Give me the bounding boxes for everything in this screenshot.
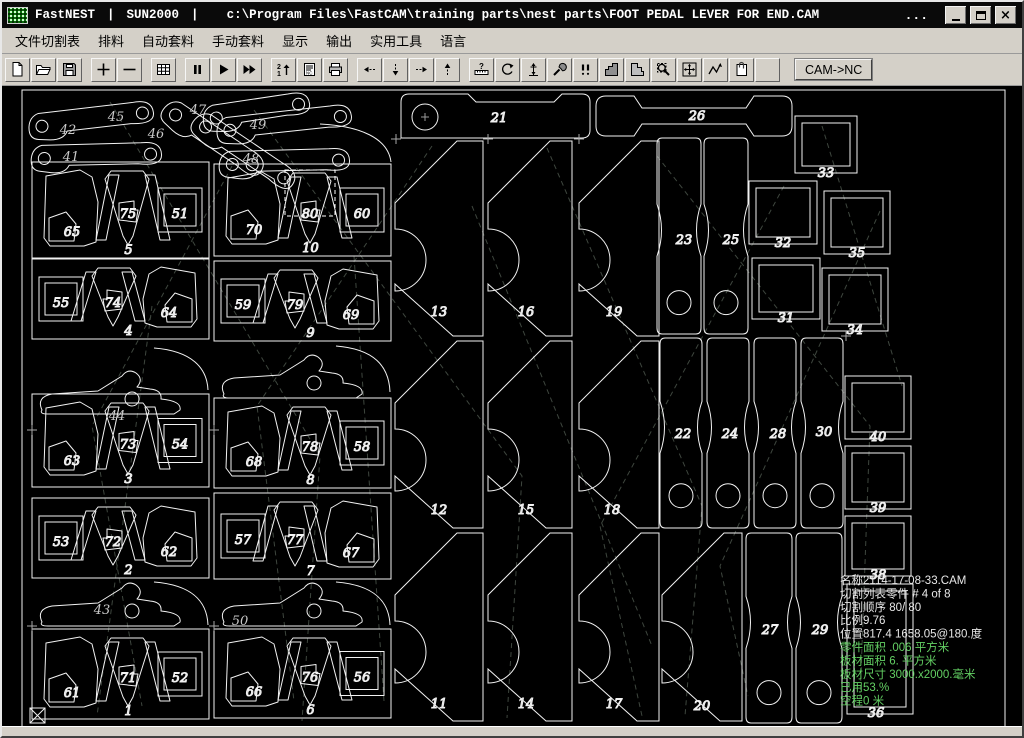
strip-part-30[interactable]: 30 bbox=[801, 338, 843, 528]
flank-triangle[interactable] bbox=[278, 177, 301, 238]
part-inner-cut bbox=[802, 123, 850, 166]
part-label: 73 bbox=[120, 438, 137, 453]
toolbar: 21NC?CAM->NC bbox=[2, 54, 1022, 86]
info-line: 板材尺寸 3000.x2000.毫米 bbox=[840, 667, 976, 681]
strip-hole bbox=[810, 484, 834, 508]
rotate-icon[interactable] bbox=[495, 58, 520, 82]
move-right-icon[interactable] bbox=[409, 58, 434, 82]
strip-hole bbox=[667, 291, 691, 315]
tall-part-14[interactable]: 14 bbox=[488, 533, 572, 721]
part-shape-icon[interactable] bbox=[599, 58, 624, 82]
part-outline bbox=[824, 191, 890, 254]
part-outline bbox=[579, 533, 659, 721]
info-line: 切割顺序 80/ 80 bbox=[840, 600, 921, 614]
menu-item-7[interactable]: 语言 bbox=[431, 28, 475, 53]
part-inner-cut bbox=[759, 265, 813, 312]
strip-part-28[interactable]: 28 bbox=[754, 338, 796, 528]
tall-part-15[interactable]: 15 bbox=[488, 341, 572, 528]
square-part-31[interactable]: 31 bbox=[752, 258, 820, 326]
lever-hole bbox=[307, 604, 321, 618]
restore-button[interactable] bbox=[969, 5, 992, 25]
traverse-path bbox=[472, 206, 652, 646]
lever-hole bbox=[36, 120, 49, 133]
part-label: 67 bbox=[343, 546, 360, 561]
part-label: 22 bbox=[674, 427, 692, 442]
svg-text:2: 2 bbox=[277, 64, 281, 71]
path-icon[interactable] bbox=[703, 58, 728, 82]
part-label: 2 bbox=[123, 563, 132, 578]
nest-module-2[interactable]: 6272532 bbox=[32, 498, 209, 578]
drawing-area[interactable]: 6575515647455463735436272532617152170806… bbox=[2, 86, 1022, 726]
part-label: 60 bbox=[354, 207, 371, 222]
info-line: 已用53.% bbox=[840, 682, 889, 694]
part-label: 44 bbox=[108, 409, 126, 424]
app-title: FastNEST bbox=[35, 8, 95, 22]
part-label: 8 bbox=[306, 473, 314, 488]
part-label: 6 bbox=[306, 703, 314, 718]
menu-item-5[interactable]: 输出 bbox=[317, 28, 361, 53]
lever-part-42[interactable] bbox=[28, 101, 155, 141]
part-outline bbox=[662, 533, 742, 721]
hole-center-mark bbox=[421, 113, 429, 121]
lever-part-x[interactable] bbox=[222, 355, 362, 398]
part-label: 78 bbox=[302, 440, 319, 455]
part-label: 11 bbox=[431, 697, 448, 712]
svg-text:?: ? bbox=[479, 62, 484, 71]
part-label: 75 bbox=[120, 207, 137, 222]
part-outline bbox=[579, 341, 659, 528]
strip-part-24[interactable]: 24 bbox=[707, 338, 749, 528]
measure-icon[interactable]: ? bbox=[469, 58, 494, 82]
strip-hole bbox=[807, 681, 831, 705]
part-label: 65 bbox=[64, 225, 81, 240]
part-outline bbox=[822, 268, 888, 331]
lever-hole bbox=[307, 376, 321, 390]
part-label: 71 bbox=[120, 671, 137, 686]
square-part-35[interactable]: 35 bbox=[824, 191, 890, 261]
cross-mark bbox=[27, 425, 37, 435]
remnant-arc bbox=[154, 582, 208, 625]
nc-code-icon[interactable]: NC bbox=[297, 58, 322, 82]
svg-text:1: 1 bbox=[277, 71, 281, 78]
part-outline bbox=[749, 181, 817, 244]
move-left-icon[interactable] bbox=[357, 58, 382, 82]
part-outline bbox=[752, 258, 820, 319]
tall-part-18[interactable]: 18 bbox=[579, 341, 659, 528]
zoom-out-icon[interactable] bbox=[117, 58, 142, 82]
part-label: 43 bbox=[93, 603, 111, 618]
square-part-40[interactable]: 40 bbox=[845, 376, 911, 445]
part-label: 79 bbox=[287, 298, 304, 313]
menu-item-3[interactable]: 手动套料 bbox=[203, 28, 273, 53]
lever-outline bbox=[222, 355, 362, 398]
part-label: 36 bbox=[868, 706, 885, 721]
part-label: 5 bbox=[124, 243, 132, 258]
info-panel: 名称2114-17-08-33.CAM切割列表零件 # 4 of 8切割顺序 8… bbox=[840, 573, 983, 708]
part-inner-cut bbox=[829, 275, 881, 324]
part-label: 30 bbox=[816, 425, 833, 440]
part-label: 24 bbox=[721, 427, 739, 442]
strip-part-25[interactable]: 25 bbox=[704, 138, 748, 334]
part-label: 25 bbox=[722, 233, 740, 248]
lever-hole bbox=[136, 107, 149, 120]
strip-part-23[interactable]: 23 bbox=[657, 138, 701, 334]
part-outline bbox=[488, 341, 572, 528]
part-label: 41 bbox=[62, 150, 80, 165]
part-inner-cut bbox=[852, 383, 904, 432]
status-bar bbox=[2, 726, 1022, 736]
fast-run-icon[interactable] bbox=[237, 58, 262, 82]
restore-icon bbox=[976, 11, 986, 20]
nest-module-4[interactable]: 6474554 bbox=[32, 259, 209, 339]
flank-triangle[interactable] bbox=[304, 506, 327, 561]
tall-part-12[interactable]: 12 bbox=[395, 341, 483, 528]
part-label: 9 bbox=[306, 326, 314, 341]
close-icon: × bbox=[1000, 9, 1011, 22]
square-part-32[interactable]: 32 bbox=[749, 181, 817, 251]
sequence-icon[interactable]: 21 bbox=[271, 58, 296, 82]
part-label: 50 bbox=[232, 614, 249, 629]
flank-triangle[interactable] bbox=[278, 642, 301, 700]
part-label: 62 bbox=[161, 545, 178, 560]
part-label: 26 bbox=[688, 109, 706, 124]
part-label: 64 bbox=[161, 306, 178, 321]
part-label: 48 bbox=[242, 152, 260, 167]
flank-triangle[interactable] bbox=[122, 272, 145, 321]
lever-hole bbox=[334, 110, 347, 123]
menu-item-4[interactable]: 显示 bbox=[273, 28, 317, 53]
part-label: 10 bbox=[302, 241, 319, 256]
part-label: 74 bbox=[105, 296, 122, 311]
traverse-path bbox=[257, 146, 432, 701]
strip-hole bbox=[757, 681, 781, 705]
tall-part-19[interactable]: 19 bbox=[579, 141, 659, 336]
strip-part-27[interactable]: 27 bbox=[746, 533, 792, 723]
part-label: 7 bbox=[306, 564, 315, 579]
minimize-button[interactable] bbox=[944, 5, 967, 25]
cam-to-nc-button[interactable]: CAM->NC bbox=[795, 59, 872, 80]
strip-hole bbox=[763, 484, 787, 508]
lever-hole bbox=[38, 152, 50, 164]
part-label: 13 bbox=[431, 305, 448, 320]
info-line: 切割列表零件 # 4 of 8 bbox=[840, 586, 951, 600]
part-outline bbox=[395, 341, 483, 528]
flank-triangle[interactable] bbox=[122, 511, 145, 560]
part-label: 16 bbox=[518, 305, 535, 320]
remnant-arc bbox=[154, 348, 208, 390]
part-label: 58 bbox=[354, 440, 371, 455]
part-label: 80 bbox=[302, 207, 319, 222]
app-icon bbox=[7, 7, 28, 24]
flank-triangle[interactable] bbox=[96, 175, 119, 240]
part-label: 33 bbox=[818, 166, 835, 181]
info-line: 零件面积 .006 平方米 bbox=[840, 640, 950, 654]
part-inner-cut bbox=[756, 188, 810, 237]
menu-item-1[interactable]: 排料 bbox=[89, 28, 133, 53]
plate-shape-icon[interactable] bbox=[625, 58, 650, 82]
tall-part-20[interactable]: 20 bbox=[662, 533, 742, 721]
nest-module-1[interactable]: 6171521 bbox=[32, 629, 209, 719]
part-outline bbox=[488, 533, 572, 721]
part-label: 40 bbox=[869, 430, 887, 445]
plate-grid-icon[interactable] bbox=[151, 58, 176, 82]
open-file-icon[interactable] bbox=[31, 58, 56, 82]
menu-bar: 文件切割表排料自动套料手动套料显示输出实用工具语言 bbox=[2, 28, 1022, 54]
info-line: 位置817.4 1658.05@180.度 bbox=[840, 627, 983, 641]
part-label: 18 bbox=[604, 503, 621, 518]
menu-item-0[interactable]: 文件切割表 bbox=[6, 28, 89, 53]
pierce-icon[interactable] bbox=[573, 58, 598, 82]
part-label: 4 bbox=[123, 324, 132, 339]
part-label: 29 bbox=[811, 623, 829, 638]
part-label: 46 bbox=[147, 127, 165, 142]
part-label: 54 bbox=[172, 438, 189, 453]
flank-triangle[interactable] bbox=[304, 274, 327, 323]
cross-mark bbox=[391, 134, 401, 144]
lever-outline bbox=[40, 371, 180, 414]
flank-triangle[interactable] bbox=[96, 642, 119, 701]
save-icon[interactable] bbox=[57, 58, 82, 82]
lever-hole bbox=[125, 604, 139, 618]
part-label: 39 bbox=[870, 501, 887, 516]
part-label: 27 bbox=[761, 623, 779, 638]
part-label: 28 bbox=[769, 427, 787, 442]
move-down-icon[interactable] bbox=[383, 58, 408, 82]
nest-module-7[interactable]: 6777577 bbox=[214, 493, 391, 579]
menu-item-6[interactable]: 实用工具 bbox=[361, 28, 431, 53]
tall-part-13[interactable]: 13 bbox=[395, 141, 483, 336]
part-label: 55 bbox=[53, 296, 70, 311]
part-label: 57 bbox=[235, 533, 252, 548]
part-label: 17 bbox=[606, 697, 623, 712]
part-label: 21 bbox=[490, 111, 508, 126]
remnant-arc bbox=[336, 582, 390, 625]
part-label: 23 bbox=[675, 233, 693, 248]
cross-mark bbox=[209, 425, 219, 435]
info-line: 板材面积 6. 平方米 bbox=[840, 653, 937, 667]
title-bar[interactable]: FastNEST | SUN2000 | c:\Program Files\Fa… bbox=[2, 2, 1022, 28]
nest-canvas[interactable]: 6575515647455463735436272532617152170806… bbox=[2, 86, 1022, 726]
part-inner-cut bbox=[852, 453, 904, 502]
file-path: c:\Program Files\FastCAM\training parts\… bbox=[227, 8, 820, 22]
pan-icon[interactable] bbox=[677, 58, 702, 82]
bar-part-26[interactable]: 26 bbox=[596, 96, 792, 136]
tall-part-17[interactable]: 17 bbox=[579, 533, 659, 721]
info-line: 空程0 米 bbox=[840, 694, 885, 708]
title-separator: | bbox=[191, 8, 199, 22]
part-label: 53 bbox=[53, 535, 70, 550]
registration-marks bbox=[27, 134, 851, 631]
part-label: 3 bbox=[124, 472, 132, 487]
part-label: 19 bbox=[606, 305, 623, 320]
square-part-39[interactable]: 39 bbox=[845, 446, 911, 516]
tall-part-16[interactable]: 16 bbox=[488, 141, 572, 336]
fastnest-window: FastNEST | SUN2000 | c:\Program Files\Fa… bbox=[0, 0, 1024, 738]
title-overflow-dots: ... bbox=[905, 8, 928, 23]
strip-part-22[interactable]: 22 bbox=[660, 338, 702, 528]
strip-part-29[interactable]: 29 bbox=[796, 533, 842, 723]
part-label: 1 bbox=[124, 704, 132, 719]
part-label: 42 bbox=[59, 123, 77, 138]
info-line: 比例9.76 bbox=[840, 613, 885, 627]
nest-module-3[interactable]: 6373543 bbox=[32, 394, 209, 487]
svg-text:NC: NC bbox=[306, 71, 313, 76]
nest-module-6[interactable]: 6676566 bbox=[214, 629, 391, 718]
square-part-38[interactable]: 38 bbox=[845, 516, 911, 583]
part-label: 61 bbox=[64, 686, 81, 701]
part-label: 70 bbox=[246, 223, 263, 238]
part-label: 47 bbox=[189, 103, 207, 118]
close-button[interactable]: × bbox=[994, 5, 1017, 25]
new-document-icon[interactable] bbox=[5, 58, 30, 82]
lever-hole bbox=[167, 107, 184, 124]
part-label: 59 bbox=[235, 298, 252, 313]
tools-icon[interactable] bbox=[547, 58, 572, 82]
part-label: 68 bbox=[246, 455, 263, 470]
lever-outline bbox=[28, 101, 155, 141]
part-label: 69 bbox=[343, 308, 360, 323]
part-inner-cut bbox=[852, 523, 904, 569]
part-label: 45 bbox=[107, 110, 125, 125]
part-label: 14 bbox=[518, 697, 535, 712]
square-part-34[interactable]: 34 bbox=[822, 268, 888, 338]
zoom-in-icon[interactable] bbox=[91, 58, 116, 82]
part-label: 31 bbox=[778, 311, 795, 326]
part-label: 12 bbox=[431, 503, 448, 518]
part-label: 15 bbox=[518, 503, 535, 518]
part-label: 66 bbox=[246, 685, 263, 700]
part-label: 56 bbox=[354, 671, 371, 686]
flank-triangle[interactable] bbox=[278, 411, 301, 470]
part-outline bbox=[395, 533, 483, 721]
remnant-arc bbox=[320, 124, 391, 162]
part-outline bbox=[795, 116, 857, 173]
print-icon[interactable] bbox=[323, 58, 348, 82]
datum-icon[interactable] bbox=[521, 58, 546, 82]
part-label: 51 bbox=[172, 207, 189, 222]
lever-part-44[interactable] bbox=[40, 371, 180, 414]
pause-icon[interactable] bbox=[185, 58, 210, 82]
part-label: 77 bbox=[287, 533, 304, 548]
square-part-33[interactable]: 33 bbox=[795, 116, 857, 181]
part-outline bbox=[845, 446, 911, 509]
part-outline bbox=[845, 516, 911, 576]
bar-part-21[interactable]: 21 bbox=[401, 94, 590, 138]
move-up-icon[interactable] bbox=[435, 58, 460, 82]
strip-hole bbox=[714, 291, 738, 315]
menu-item-2[interactable]: 自动套料 bbox=[133, 28, 203, 53]
run-icon[interactable] bbox=[211, 58, 236, 82]
cross-mark bbox=[483, 134, 493, 144]
nest-module-9[interactable]: 6979599 bbox=[214, 261, 391, 341]
traverse-path bbox=[110, 102, 320, 721]
part-label: 32 bbox=[775, 236, 792, 251]
machine-profile: SUN2000 bbox=[127, 8, 180, 22]
zoom-window-icon[interactable] bbox=[651, 58, 676, 82]
part-label: 49 bbox=[249, 118, 267, 133]
strip-hole bbox=[716, 484, 740, 508]
info-line: 名称2114-17-08-33.CAM bbox=[840, 573, 966, 587]
nest-module-5[interactable]: 6575515 bbox=[32, 162, 209, 258]
traverse-path bbox=[600, 186, 784, 716]
part-label: 72 bbox=[105, 535, 122, 550]
part-label: 35 bbox=[849, 246, 866, 261]
part-label: 63 bbox=[64, 454, 81, 469]
tall-part-11[interactable]: 11 bbox=[395, 533, 483, 721]
part-label: 52 bbox=[172, 671, 189, 686]
lever-hole bbox=[144, 148, 156, 160]
cross-mark bbox=[574, 134, 584, 144]
minimize-icon bbox=[952, 19, 960, 21]
blank-button[interactable] bbox=[755, 58, 780, 82]
strip-hole bbox=[669, 484, 693, 508]
part-label: 20 bbox=[693, 699, 711, 714]
report-icon[interactable] bbox=[729, 58, 754, 82]
title-separator: | bbox=[107, 8, 115, 22]
part-label: 76 bbox=[302, 671, 319, 686]
nest-module-10[interactable]: 70806010 bbox=[214, 164, 391, 256]
